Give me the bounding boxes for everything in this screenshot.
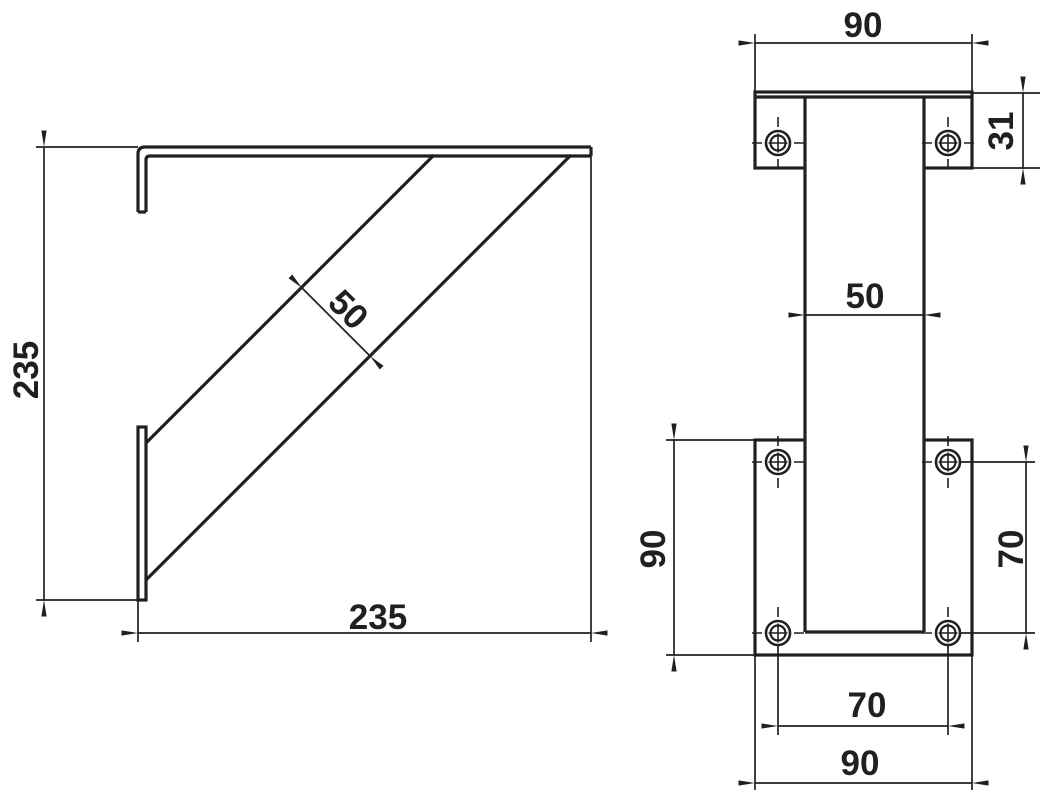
front-view: 90 31 50 90 70 bbox=[634, 6, 1040, 790]
dim-label-brace-width: 50 bbox=[321, 282, 376, 337]
dim-label-side-height: 235 bbox=[7, 341, 46, 399]
dim-label-hole-spacing-vertical: 70 bbox=[992, 530, 1031, 569]
dim-side-height: 235 bbox=[7, 147, 138, 600]
technical-drawing-canvas: 235 235 50 bbox=[0, 0, 1048, 804]
dim-top-plate-height: 31 bbox=[972, 93, 1040, 168]
wall-flange-lower bbox=[138, 427, 146, 600]
side-view: 235 235 50 bbox=[7, 147, 591, 642]
dim-label-top-width: 90 bbox=[844, 6, 883, 45]
dim-brace-width: 50 bbox=[302, 282, 376, 356]
dim-top-width: 90 bbox=[755, 6, 972, 92]
channel-face bbox=[805, 97, 924, 632]
diagonal-brace-lower-edge bbox=[146, 155, 571, 580]
dim-hole-spacing-horizontal: 70 bbox=[778, 646, 948, 735]
dim-label-channel-width: 50 bbox=[846, 277, 885, 316]
dim-label-hole-spacing-horizontal: 70 bbox=[848, 686, 887, 725]
dim-label-bottom-width: 90 bbox=[841, 744, 880, 783]
dim-side-depth: 235 bbox=[138, 156, 591, 642]
dim-label-bottom-plate-height: 90 bbox=[634, 530, 673, 569]
diagonal-brace-upper-edge bbox=[146, 155, 434, 443]
dim-label-top-plate-height: 31 bbox=[982, 112, 1021, 151]
dim-label-side-depth: 235 bbox=[349, 598, 407, 637]
dim-bottom-plate-height: 90 bbox=[634, 440, 755, 655]
